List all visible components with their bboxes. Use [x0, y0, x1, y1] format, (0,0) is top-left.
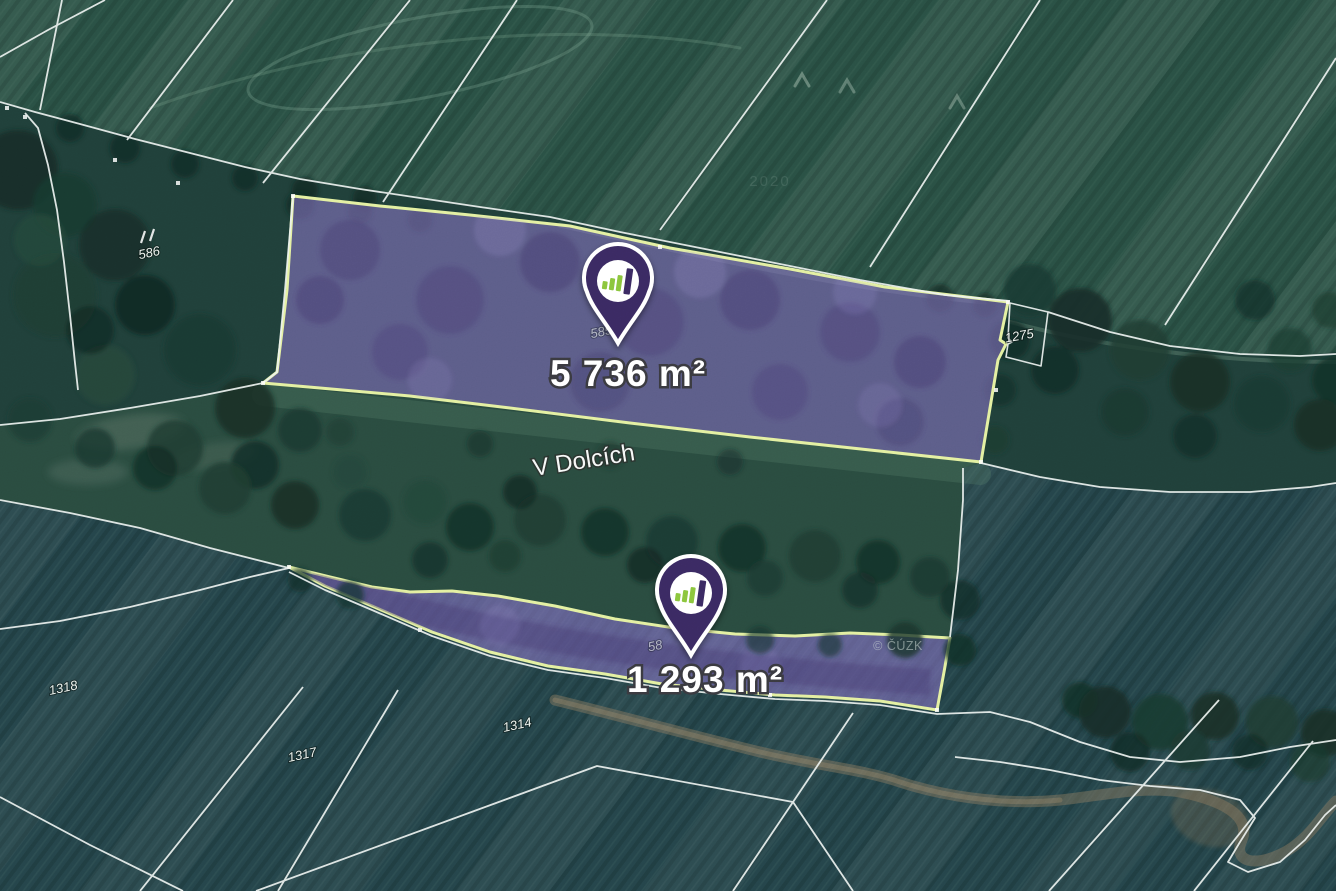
map-canvas[interactable]: V Dolcích 586 1275 1318 1317 1314 585 58…: [0, 0, 1336, 891]
satellite-map-view[interactable]: V Dolcích 586 1275 1318 1317 1314 585 58…: [0, 0, 1336, 891]
grain-overlay: [0, 0, 1336, 891]
